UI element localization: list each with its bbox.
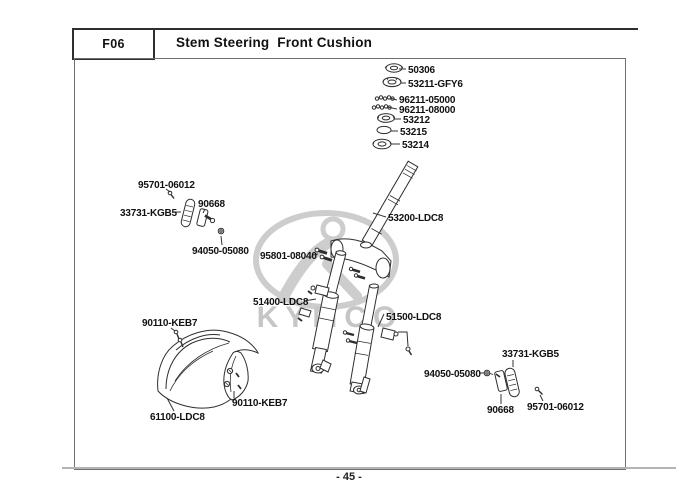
part-label-95701-06012-r: 95701-06012	[527, 402, 584, 413]
reflector-bracket-left-icon	[196, 208, 214, 226]
catalog-page: F06 Stem Steering Front Cushion KYMCO	[0, 0, 700, 495]
fork-clamp-left-icon	[308, 285, 329, 296]
page-number: - 45 -	[74, 471, 624, 483]
part-label-94050-05080-r: 94050-05080	[424, 369, 481, 380]
bridge-bolt-lower-icon	[349, 267, 365, 278]
bearing-race-top-icon	[383, 77, 401, 86]
part-label-95801-08040: 95801-08040	[260, 251, 317, 262]
bearing-race-bottom-icon	[373, 139, 391, 149]
fork-clamp-right-icon	[381, 328, 412, 355]
part-label-53215: 53215	[400, 127, 427, 138]
part-label-90110-keb7-b: 90110-KEB7	[232, 398, 288, 409]
footer-rule	[62, 467, 676, 469]
part-label-33731-kgb5-l: 33731-KGB5	[120, 208, 178, 219]
part-label-50306: 50306	[408, 65, 435, 76]
part-label-95701-06012-l: 95701-06012	[138, 180, 195, 191]
stem-nut-icon	[385, 64, 403, 72]
nut-left-icon	[218, 228, 224, 234]
leader-line-95701-06012-r	[540, 395, 543, 401]
steering-stem	[362, 161, 418, 246]
reflector-group-right	[484, 367, 542, 398]
front-fender	[158, 330, 258, 408]
screw-left-icon	[168, 191, 174, 198]
bearing-race-mid-icon	[378, 114, 395, 123]
leader-line-94050-05080-l	[221, 236, 222, 245]
part-label-53200-ldc8: 53200-LDC8	[388, 213, 444, 224]
part-label-94050-05080-l: 94050-05080	[192, 246, 249, 257]
part-label-90668-r: 90668	[487, 405, 514, 416]
dust-seal-ring-icon	[377, 126, 391, 133]
part-label-53211-gfy6: 53211-GFY6	[408, 79, 463, 90]
part-label-53212: 53212	[403, 115, 430, 126]
part-label-90110-keb7-t: 90110-KEB7	[142, 318, 198, 329]
screw-right-icon	[535, 387, 542, 394]
part-label-90668-l: 90668	[198, 199, 225, 210]
parts-diagram: KYMCO	[0, 0, 700, 495]
part-label-61100-ldc8: 61100-LDC8	[150, 412, 205, 423]
part-label-51400-ldc8: 51400-LDC8	[253, 297, 309, 308]
nut-right-icon	[484, 370, 493, 376]
part-label-51500-ldc8: 51500-LDC8	[386, 312, 442, 323]
part-label-33731-kgb5-r: 33731-KGB5	[502, 349, 560, 360]
part-label-53214: 53214	[402, 140, 429, 151]
reflector-left-icon	[180, 198, 196, 227]
